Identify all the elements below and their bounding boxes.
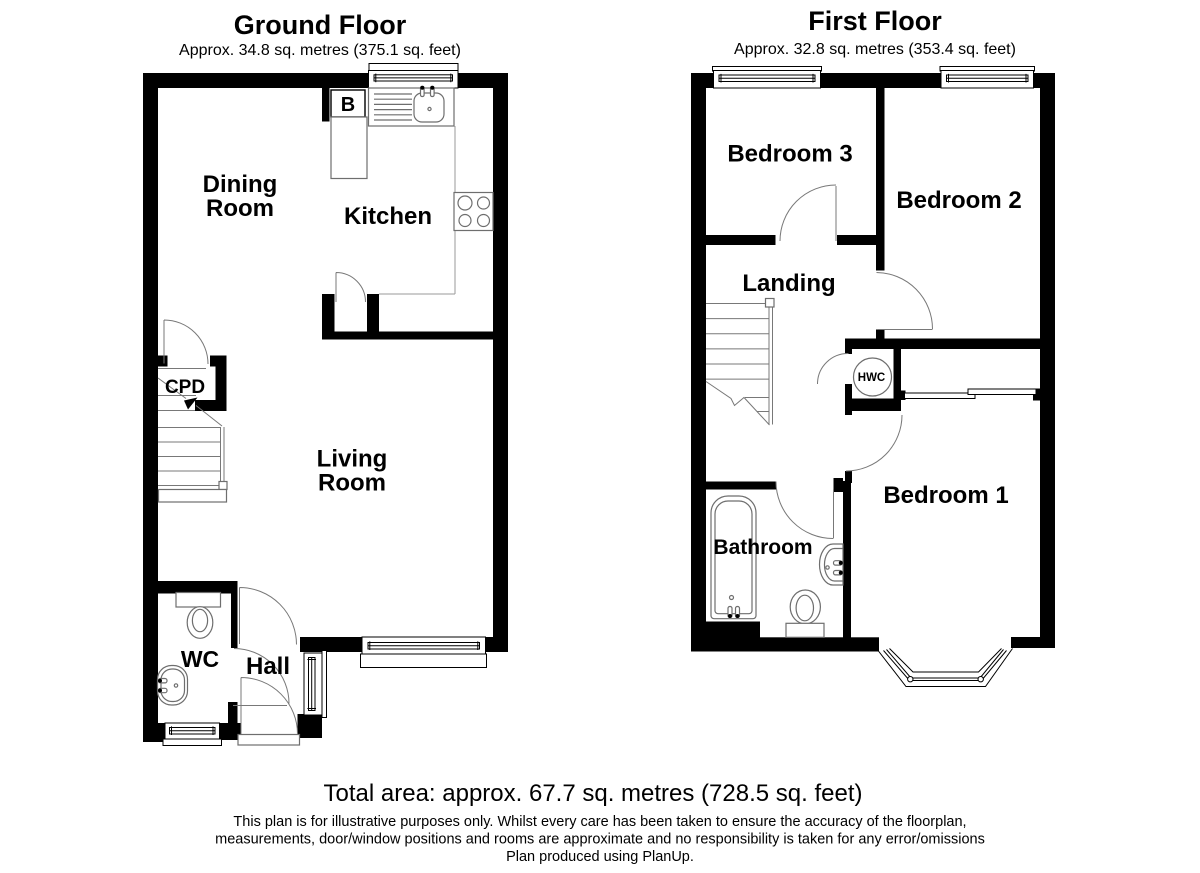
- svg-text:Living: Living: [317, 446, 388, 473]
- svg-text:Kitchen: Kitchen: [344, 203, 432, 230]
- svg-text:Bedroom 1: Bedroom 1: [883, 482, 1008, 509]
- svg-text:B: B: [341, 94, 355, 116]
- svg-text:Approx. 34.8 sq. metres (375.1: Approx. 34.8 sq. metres (375.1 sq. feet): [179, 42, 461, 59]
- svg-text:Bathroom: Bathroom: [713, 536, 812, 559]
- svg-text:Plan produced using PlanUp.: Plan produced using PlanUp.: [506, 849, 694, 865]
- svg-text:Bedroom 2: Bedroom 2: [896, 187, 1021, 214]
- svg-text:Dining: Dining: [203, 171, 278, 198]
- svg-text:This plan is for illustrative: This plan is for illustrative purposes o…: [233, 814, 966, 830]
- svg-text:Room: Room: [318, 470, 386, 497]
- svg-text:Bedroom 3: Bedroom 3: [727, 141, 852, 168]
- svg-text:HWC: HWC: [858, 372, 885, 384]
- svg-text:Landing: Landing: [742, 270, 835, 297]
- svg-text:Hall: Hall: [246, 653, 290, 680]
- svg-text:WC: WC: [181, 646, 219, 672]
- svg-text:Approx. 32.8 sq. metres (353.4: Approx. 32.8 sq. metres (353.4 sq. feet): [734, 41, 1016, 58]
- svg-text:First Floor: First Floor: [808, 6, 942, 36]
- svg-text:Total area: approx. 67.7 sq. m: Total area: approx. 67.7 sq. metres (728…: [324, 780, 863, 807]
- svg-text:Room: Room: [206, 195, 274, 222]
- svg-text:Ground Floor: Ground Floor: [234, 10, 407, 40]
- svg-text:CPD: CPD: [165, 377, 205, 398]
- svg-text:measurements, door/window posi: measurements, door/window positions and …: [215, 832, 985, 848]
